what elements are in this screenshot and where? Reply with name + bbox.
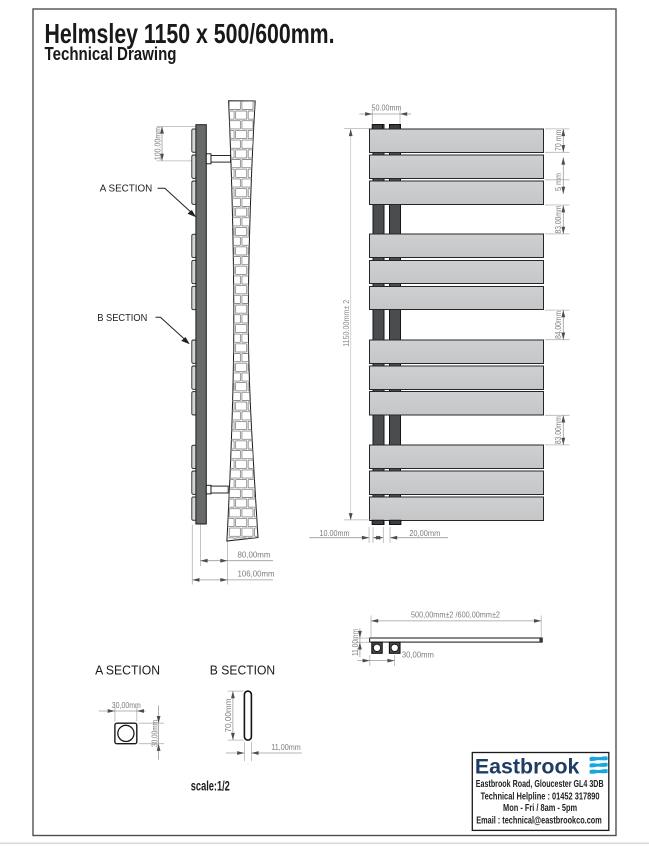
svg-text:20,00mm: 20,00mm	[409, 528, 440, 538]
svg-text:Technical Helpline : 01452 317: Technical Helpline : 01452 317890	[481, 792, 600, 803]
svg-text:11,00mm: 11,00mm	[351, 629, 360, 656]
svg-text:100.00mm: 100.00mm	[154, 127, 163, 160]
svg-text:106,00mm: 106,00mm	[238, 569, 275, 579]
svg-text:B SECTION: B SECTION	[97, 312, 147, 324]
svg-text:Mon - Fri / 8am - 5pm: Mon - Fri / 8am - 5pm	[503, 803, 577, 814]
svg-text:Eastbrook Road, Gloucester GL4: Eastbrook Road, Gloucester GL4 3DB	[476, 779, 604, 790]
svg-text:500,00mm±2 /600,00mm±2: 500,00mm±2 /600,00mm±2	[411, 610, 500, 620]
svg-text:83.00mm: 83.00mm	[554, 416, 563, 444]
svg-text:5 mm: 5 mm	[554, 173, 563, 191]
svg-text:11,00mm: 11,00mm	[271, 742, 301, 752]
svg-text:Eastbrook: Eastbrook	[475, 755, 580, 779]
svg-text:30,00mm: 30,00mm	[149, 720, 159, 747]
svg-text:30,00mm: 30,00mm	[402, 650, 434, 660]
svg-text:30,00mm: 30,00mm	[112, 700, 141, 710]
svg-text:84.00mm: 84.00mm	[554, 311, 563, 339]
svg-text:10.00mm: 10.00mm	[320, 528, 350, 538]
svg-text:80,00mm: 80,00mm	[238, 550, 271, 560]
svg-text:50.00mm: 50.00mm	[372, 102, 402, 112]
svg-text:1150.00mm± 2: 1150.00mm± 2	[342, 299, 351, 346]
svg-text:Technical Drawing: Technical Drawing	[45, 43, 177, 64]
svg-text:scale:1/2: scale:1/2	[191, 779, 230, 794]
svg-text:Email : technical@eastbrookco.: Email : technical@eastbrookco.com	[476, 815, 602, 826]
svg-text:B SECTION: B SECTION	[210, 663, 275, 678]
svg-text:70 mm: 70 mm	[554, 130, 563, 152]
svg-text:A SECTION: A SECTION	[95, 663, 160, 678]
svg-text:70,00mm: 70,00mm	[223, 698, 233, 732]
svg-text:83.00mm: 83.00mm	[554, 206, 563, 234]
svg-text:A SECTION: A SECTION	[100, 183, 153, 195]
